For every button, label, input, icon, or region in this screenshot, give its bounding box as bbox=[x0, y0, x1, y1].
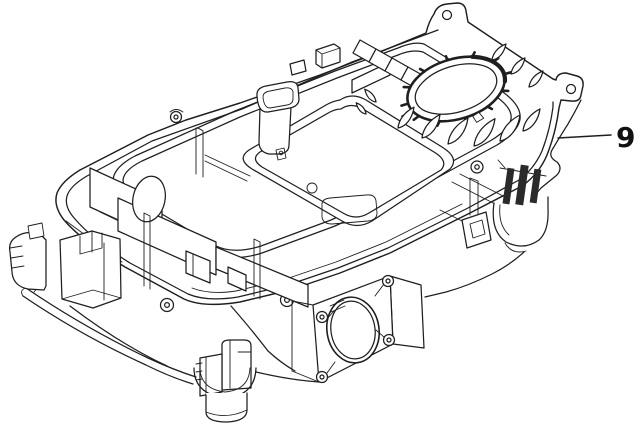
rim-boss-upper-left bbox=[171, 112, 182, 123]
channel-boss bbox=[471, 161, 483, 173]
callout-leader-line bbox=[558, 135, 611, 138]
screw-hole-right-ear bbox=[567, 85, 576, 94]
motor-screw-boss bbox=[317, 372, 328, 383]
screw-hole-top-ear bbox=[443, 11, 452, 20]
corner-post-large bbox=[60, 231, 121, 308]
parts-diagram-page: 9 bbox=[0, 0, 643, 434]
front-suspension-foot bbox=[194, 340, 256, 422]
side-bracket bbox=[462, 212, 491, 248]
rim-clip bbox=[290, 60, 306, 75]
motor-screw-boss bbox=[317, 312, 328, 323]
chassis-parts-diagram: 9 bbox=[0, 0, 643, 434]
tray-hole bbox=[307, 183, 317, 193]
left-corner-posts bbox=[10, 223, 121, 308]
rim-boss-bottom-left bbox=[161, 299, 174, 312]
callout-9: 9 bbox=[558, 121, 635, 154]
clip-tower bbox=[222, 340, 251, 390]
right-suspension-tower bbox=[425, 100, 581, 297]
callout-number: 9 bbox=[616, 121, 635, 154]
corner-post-clip bbox=[10, 233, 46, 290]
motor-screw-boss bbox=[383, 276, 394, 287]
motor-screw-boss bbox=[384, 335, 395, 346]
suspension-clips bbox=[503, 165, 542, 206]
sensor-block bbox=[316, 44, 340, 68]
